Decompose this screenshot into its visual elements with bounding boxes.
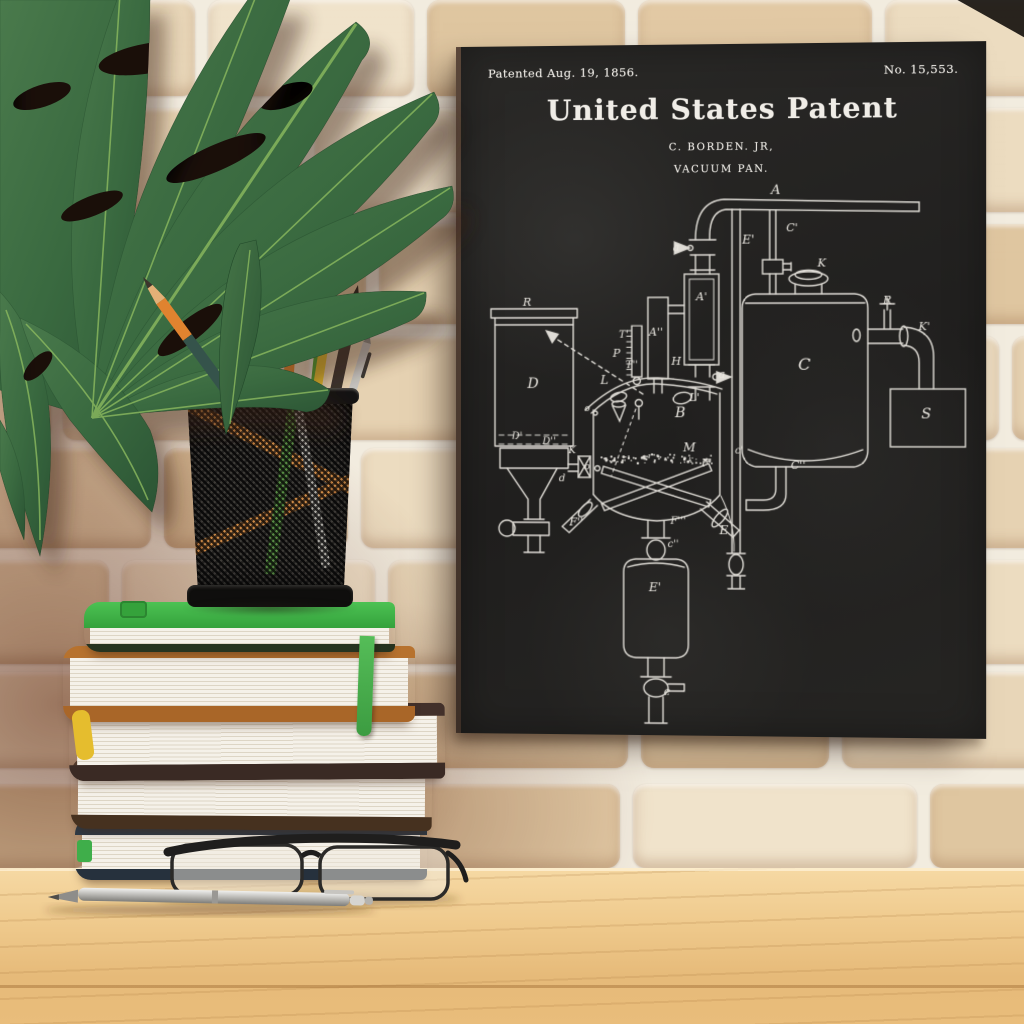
green-clip xyxy=(120,601,147,618)
diagram-label: F''' xyxy=(670,516,686,527)
brick xyxy=(0,448,151,548)
brick xyxy=(633,784,917,868)
brick xyxy=(930,784,1024,868)
cup-rim xyxy=(181,388,359,404)
diagram-label: M xyxy=(682,440,696,454)
brick xyxy=(208,0,414,96)
cup-mesh-texture xyxy=(184,401,356,587)
brick xyxy=(0,0,195,96)
diagram-label: L xyxy=(599,373,608,387)
diagram-label: e xyxy=(664,685,671,698)
brick xyxy=(0,108,85,212)
diagram-label: c' xyxy=(735,445,743,456)
diagram-label: C'' xyxy=(791,459,806,472)
diagram-label: K xyxy=(567,445,576,456)
diagram-label: E xyxy=(718,523,728,537)
diagram-label: P xyxy=(612,347,621,360)
diagram-label: E' xyxy=(741,232,754,246)
diagram-label: c'' xyxy=(668,539,679,550)
patent-print-canvas: Patented Aug. 19, 1856. No. 15,553. Unit… xyxy=(461,41,986,739)
diagram-label: D xyxy=(526,376,538,392)
green-tab xyxy=(77,840,92,862)
diagram-label: F' xyxy=(700,457,712,470)
diagram-label: D'' xyxy=(541,436,556,447)
diagram-label: H xyxy=(670,355,681,368)
diagram-label: T'' xyxy=(626,360,638,371)
cup-base xyxy=(187,585,353,607)
photo-scene: Patented Aug. 19, 1856. No. 15,553. Unit… xyxy=(0,0,1024,1024)
diagram-label: S xyxy=(921,406,931,422)
brick xyxy=(98,108,302,212)
diagram-label: A xyxy=(770,183,781,198)
diagram-label: E' xyxy=(648,580,661,594)
brick xyxy=(137,224,365,324)
diagram-label: T' xyxy=(619,330,628,341)
diagram-label: o xyxy=(585,404,591,414)
diagram-label: a xyxy=(673,241,680,254)
desk-front-seam xyxy=(0,985,1024,988)
brick xyxy=(1012,336,1024,440)
diagram-label: A' xyxy=(695,290,707,303)
diagram-label: D' xyxy=(511,431,523,442)
diagram-label: R xyxy=(522,296,531,309)
diagram-label: K xyxy=(816,256,826,269)
brick xyxy=(0,224,124,324)
mesh-pencil-cup xyxy=(181,388,359,607)
diagram-label: C xyxy=(798,355,810,374)
diagram-label: C' xyxy=(786,221,798,234)
diagram-label: o xyxy=(585,462,591,472)
diagram-label: L' xyxy=(688,391,699,404)
vacuum-pan-diagram: AE'aC'KA'A''T'CRK'SRDD'D''PT''LHaoL'BoKd… xyxy=(461,41,986,742)
diagram-label: R xyxy=(882,294,892,307)
diagram-label: A'' xyxy=(648,326,663,339)
diagram-label: F'' xyxy=(568,515,583,528)
wooden-desk xyxy=(0,868,1024,1024)
diagram-label: a xyxy=(719,368,726,381)
diagram-label: d xyxy=(559,473,565,484)
diagram-label: K' xyxy=(917,320,930,333)
cup-body xyxy=(184,401,356,587)
brick xyxy=(0,336,51,440)
diagram-label: B xyxy=(674,405,685,421)
